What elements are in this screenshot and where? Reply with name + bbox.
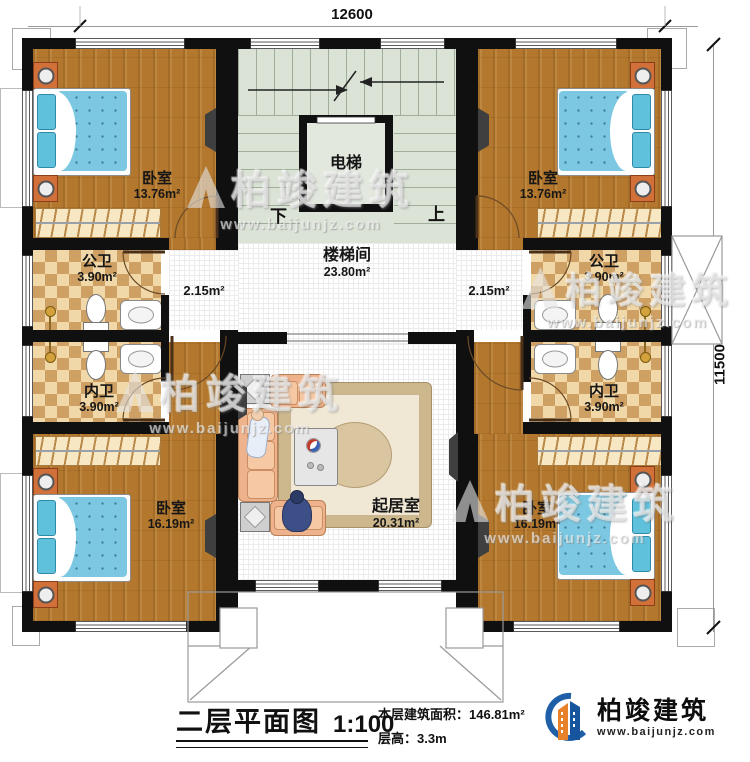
room-area: 23.80m² — [323, 265, 371, 279]
room-label-passage-right: 2.15m² — [468, 284, 509, 299]
room-name: 楼梯间 — [323, 247, 371, 265]
room-label-living: 起居室 20.31m² — [372, 498, 420, 531]
company-logo-icon — [543, 690, 589, 746]
room-name: 内卫 — [584, 383, 624, 400]
dimension-tick-icon — [74, 20, 720, 634]
company-logo: 柏竣建筑 www.baijunjz.com — [543, 690, 716, 746]
plan-linework — [0, 0, 750, 762]
room-area: 13.76m² — [520, 187, 567, 201]
floor-plan-canvas: 12600 11500 — [0, 0, 750, 762]
stair-direction-arrow-icon — [248, 71, 444, 101]
room-name: 卧室 — [148, 500, 195, 517]
room-area: 3.90m² — [584, 270, 624, 284]
room-name: 卧室 — [134, 170, 181, 187]
room-label-bedroom-tl: 卧室 13.76m² — [134, 170, 181, 202]
room-label-bath-private-left: 内卫 3.90m² — [79, 383, 119, 415]
room-label-bath-public-right: 公卫 3.90m² — [584, 253, 624, 285]
room-label-elevator: 电梯 — [330, 155, 362, 173]
page-title: 二层平面图 — [176, 700, 321, 739]
cased-opening — [287, 334, 408, 341]
room-label-stair-hall: 楼梯间 23.80m² — [323, 247, 371, 280]
room-name: 公卫 — [584, 253, 624, 270]
room-name: 卧室 — [520, 170, 567, 187]
room-name: 起居室 — [372, 498, 420, 516]
stair-down-label: 下 — [270, 202, 287, 227]
room-area: 2.15m² — [468, 284, 509, 299]
room-label-bedroom-bl: 卧室 16.19m² — [148, 500, 195, 532]
room-label-bath-private-right: 内卫 3.90m² — [584, 383, 624, 415]
room-label-passage-left: 2.15m² — [183, 284, 224, 299]
dimension-height: 11500 — [712, 335, 729, 395]
arrowhead-icon — [360, 77, 372, 87]
elevator-door-icon — [317, 117, 375, 123]
floor-height-text: 层高：3.3m — [378, 728, 447, 747]
room-label-bedroom-br: 卧室 16.19m² — [514, 500, 561, 532]
room-area: 20.31m² — [372, 516, 420, 530]
room-name: 卧室 — [514, 500, 561, 517]
title-block: 二层平面图 1:100 — [176, 700, 394, 739]
door-swing-arc — [123, 196, 571, 420]
title-underline — [176, 740, 368, 748]
room-name: 公卫 — [77, 253, 117, 270]
balcony-outline — [188, 592, 503, 702]
room-area: 3.90m² — [79, 400, 119, 414]
room-area: 16.19m² — [148, 517, 195, 531]
room-area: 3.90m² — [77, 270, 117, 284]
company-name: 柏竣建筑 — [597, 698, 716, 726]
stair-up-label: 上 — [428, 200, 445, 225]
room-area: 16.19m² — [514, 517, 561, 531]
dimension-width: 12600 — [331, 6, 373, 23]
room-label-bath-public-left: 公卫 3.90m² — [77, 253, 117, 285]
floor-area-text: 本层建筑面积：146.81m² — [378, 704, 525, 723]
room-area: 2.15m² — [183, 284, 224, 299]
room-name: 电梯 — [330, 155, 362, 173]
room-name: 内卫 — [79, 383, 119, 400]
room-label-bedroom-tr: 卧室 13.76m² — [520, 170, 567, 202]
company-url: www.baijunjz.com — [597, 726, 716, 738]
room-area: 13.76m² — [134, 187, 181, 201]
bay-window-icon — [672, 236, 722, 344]
arrowhead-icon — [336, 85, 348, 95]
room-area: 3.90m² — [584, 400, 624, 414]
